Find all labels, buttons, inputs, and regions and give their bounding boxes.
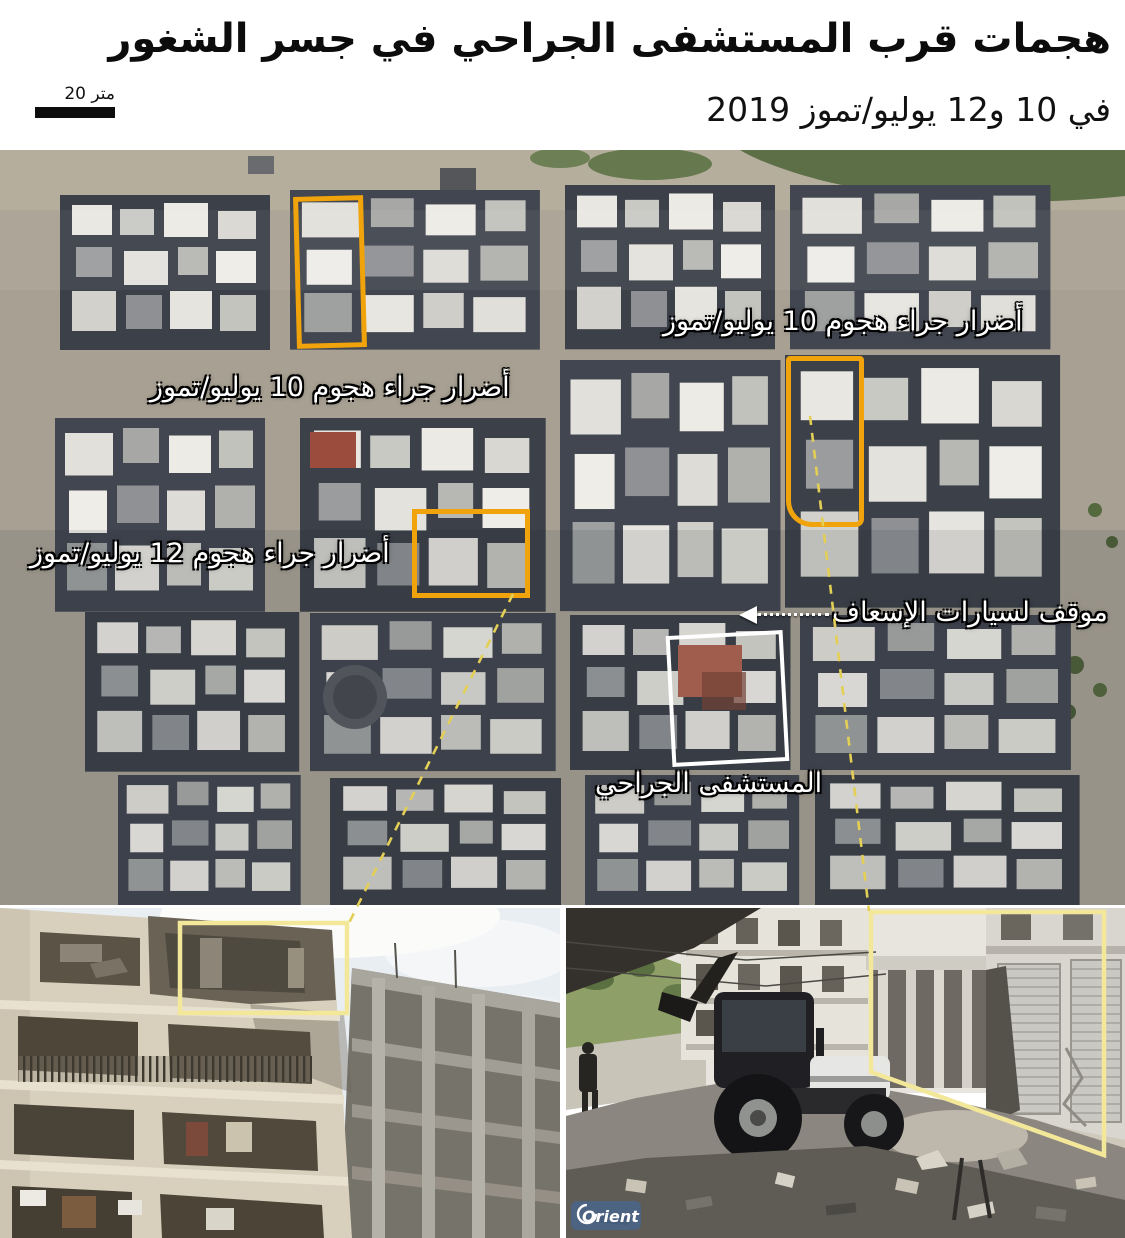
photo-left-highlight-box (0, 908, 560, 1238)
damage-box-jul10-right (786, 356, 864, 527)
ground-photo-right: Orient (566, 908, 1125, 1238)
satellite-terrain (0, 150, 1125, 905)
hospital-box (666, 630, 790, 767)
ambulance-arrow-icon (739, 606, 757, 624)
scale-bar: 20 متر (35, 84, 115, 118)
label-damage-jul10-left: أضرار جراء هجوم 10 يوليو/تموز (150, 372, 510, 403)
photo-right-highlight-box (566, 908, 1125, 1238)
label-damage-jul10-right: أضرار جراء هجوم 10 يوليو/تموز (663, 306, 1023, 337)
ambulance-dotted-line (757, 613, 829, 616)
red-roof-building (310, 432, 356, 468)
ground-photo-left (0, 908, 560, 1238)
damage-box-jul12 (412, 509, 530, 598)
label-ambulance-parking: موقف لسيارات الإسعاف (832, 597, 1108, 628)
label-hospital: المستشفى الجراحي (595, 768, 822, 799)
page-subtitle: في 10 و12 يوليو/تموز 2019 (706, 90, 1111, 129)
infographic-page: هجمات قرب المستشفى الجراحي في جسر الشغور… (0, 0, 1125, 1238)
label-damage-jul12: أضرار جراء هجوم 12 يوليو/تموز (30, 538, 390, 569)
scale-bar-rule (35, 107, 115, 118)
scale-label: 20 متر (35, 84, 115, 104)
satellite-image (0, 150, 1125, 905)
damage-box-jul10-left (293, 195, 367, 349)
page-title: هجمات قرب المستشفى الجراحي في جسر الشغور (108, 16, 1111, 62)
